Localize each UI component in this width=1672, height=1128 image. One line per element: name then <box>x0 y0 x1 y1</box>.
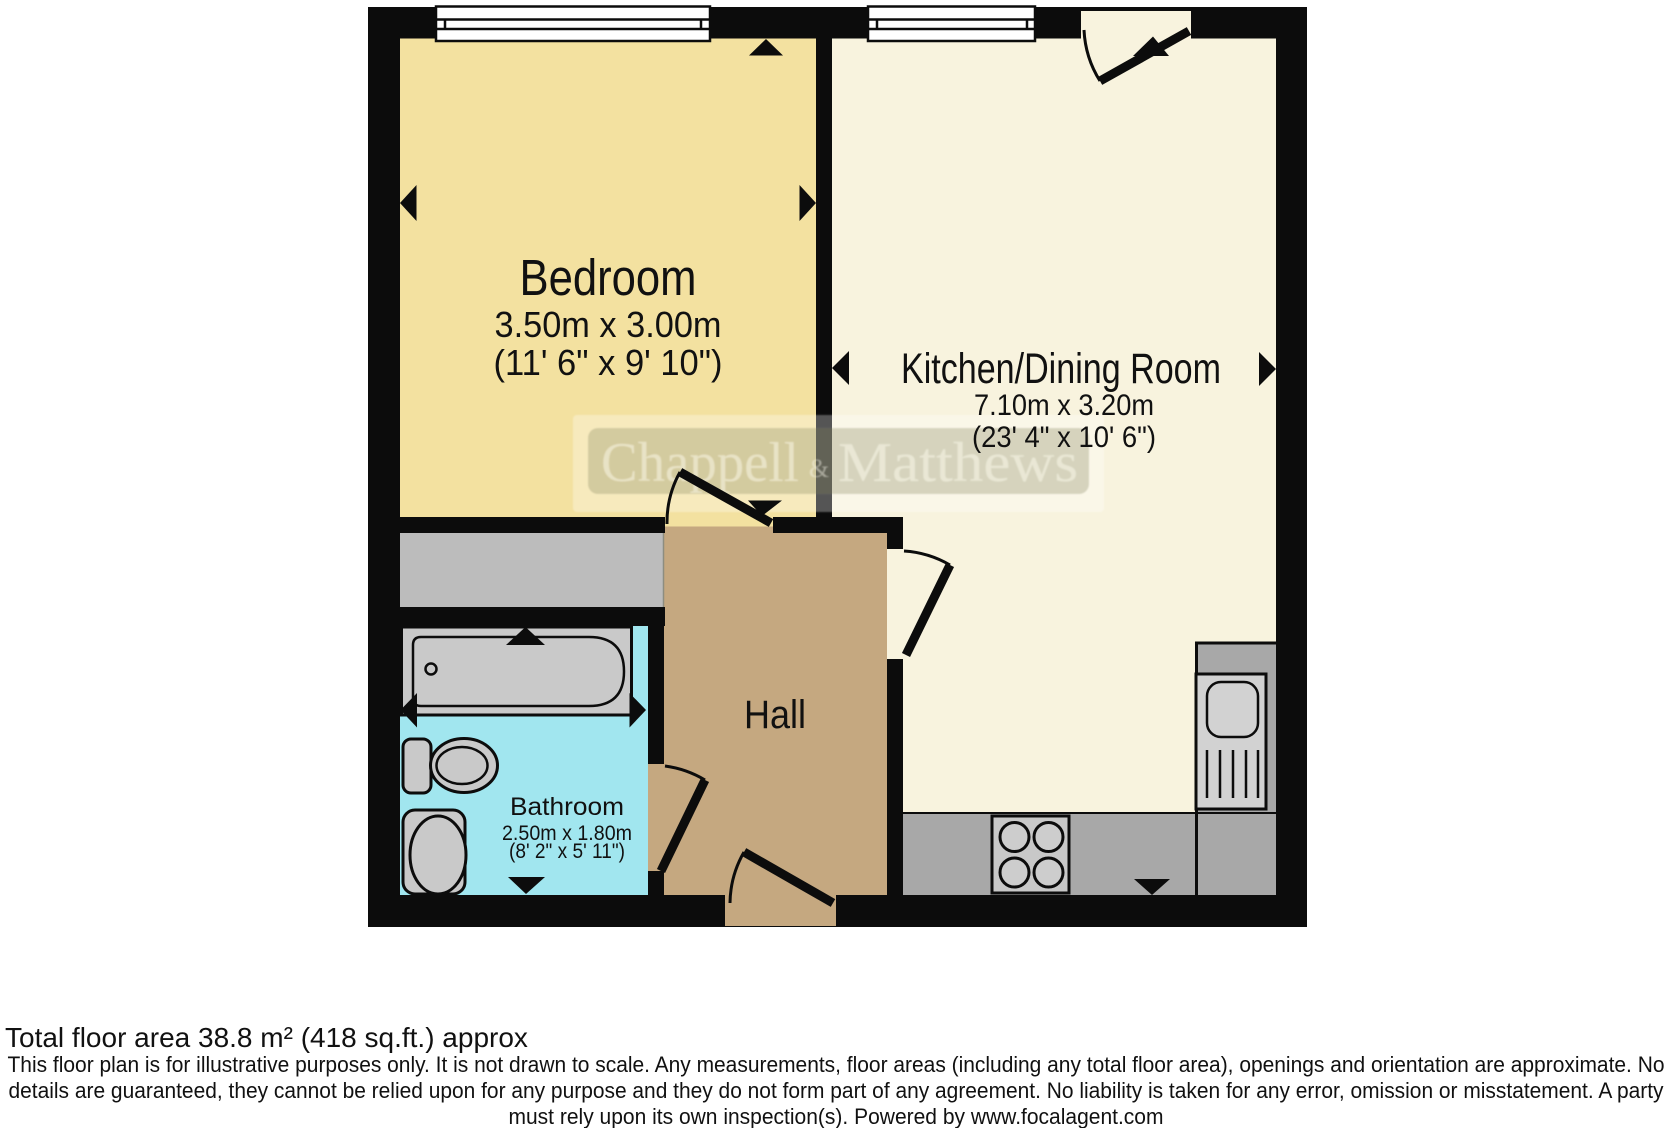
svg-text:This floor plan is for illustr: This floor plan is for illustrative purp… <box>8 1052 1665 1077</box>
svg-text:Kitchen/Dining Room: Kitchen/Dining Room <box>901 345 1221 393</box>
svg-text:must rely upon its own inspect: must rely upon its own inspection(s). Po… <box>509 1104 1164 1128</box>
svg-text:(8' 2" x 5' 11"): (8' 2" x 5' 11") <box>509 839 625 863</box>
svg-text:7.10m x 3.20m: 7.10m x 3.20m <box>974 389 1154 422</box>
svg-text:Bathroom: Bathroom <box>510 793 624 821</box>
svg-text:Bedroom: Bedroom <box>520 249 697 306</box>
svg-text:(11' 6" x 9' 10"): (11' 6" x 9' 10") <box>494 342 723 383</box>
svg-text:Total floor area 38.8 m² (418: Total floor area 38.8 m² (418 sq.ft.) ap… <box>5 1022 528 1053</box>
svg-text:Hall: Hall <box>744 693 806 737</box>
svg-text:(23' 4" x 10' 6"): (23' 4" x 10' 6") <box>972 421 1156 454</box>
svg-text:details are guaranteed, they c: details are guaranteed, they cannot be r… <box>9 1078 1664 1103</box>
svg-text:3.50m x 3.00m: 3.50m x 3.00m <box>495 304 722 345</box>
svg-text:&: & <box>809 454 829 483</box>
